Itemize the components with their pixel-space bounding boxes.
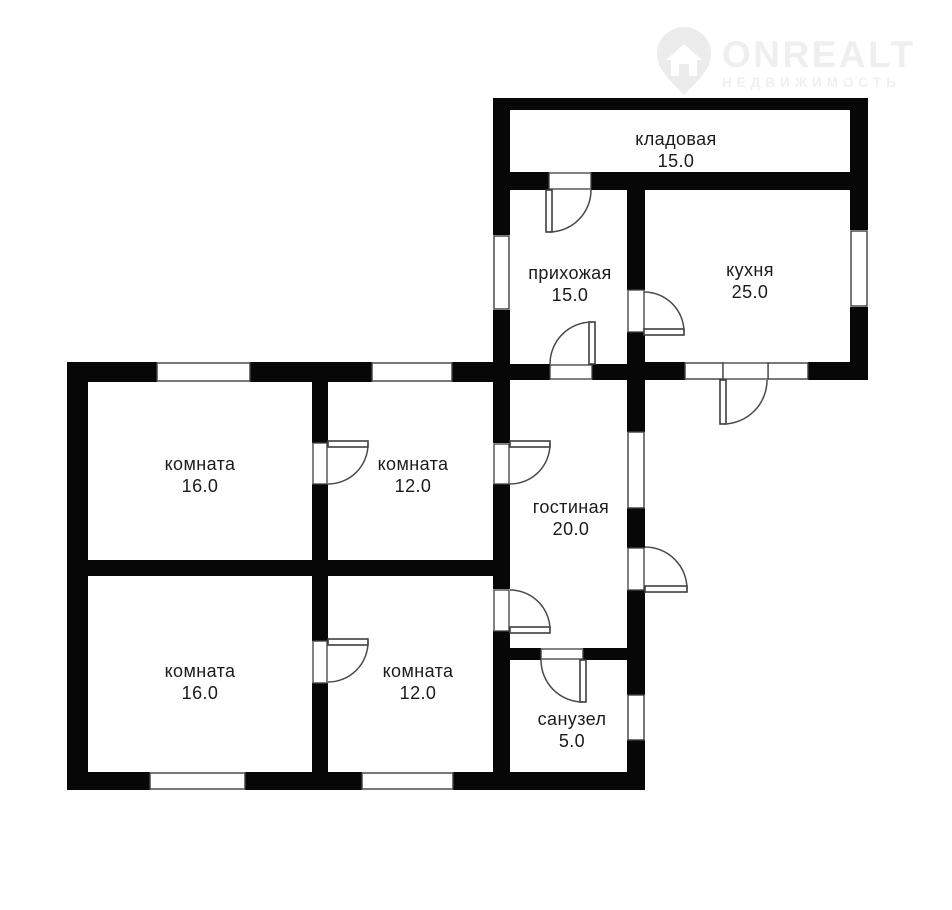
door-threshold-prihozhaya-gostinaya — [550, 365, 592, 379]
room-label-komnata-top-left: комната — [165, 454, 236, 474]
watermark-logo: ONREALT НЕДВИЖИМОСТЬ — [657, 27, 916, 95]
door-threshold-kladovaya — [549, 173, 591, 189]
room-label-komnata-bottom-right: комната — [383, 661, 454, 681]
room-label-sanuzel: санузел — [538, 709, 607, 729]
room-labels: кладовая 15.0 прихожая 15.0 кухня 25.0 к… — [165, 129, 774, 751]
wall-bottom-seg1 — [67, 772, 150, 790]
wall-rooms-horizontal — [88, 560, 493, 576]
window-gostinaya-right — [628, 432, 644, 508]
door-arc-sanuzel — [541, 660, 583, 702]
wall-kladovaya-bottom-seg2 — [591, 172, 868, 190]
wall-rooms-vertical-seg3 — [312, 683, 328, 772]
room-area-komnata-top-left: 16.0 — [182, 476, 219, 496]
wall-gostinaya-top-seg1 — [510, 364, 550, 380]
wall-west-seg1 — [493, 190, 510, 235]
door-threshold-komnata-top — [313, 443, 327, 484]
door-leaf-kladovaya — [546, 190, 552, 232]
window-kuhnya-bottom-2 — [768, 363, 808, 379]
room-area-komnata-bottom-left: 16.0 — [182, 683, 219, 703]
door-leaf-komnata-gostinaya-top — [510, 441, 550, 447]
door-threshold-sanuzel — [541, 649, 583, 659]
room-label-komnata-top-right: комната — [378, 454, 449, 474]
house-door-glyph — [679, 64, 689, 76]
wall-gostinaya-top-seg2 — [592, 364, 627, 380]
room-label-gostinaya: гостиная — [533, 497, 609, 517]
door-threshold-prihozhaya-kuhnya — [628, 290, 644, 332]
wall-sanuzel-top-seg2 — [583, 648, 627, 660]
door-arc-komnata-bottom — [328, 642, 368, 682]
wall-outer-left — [67, 362, 88, 790]
door-leaf-komnata-gostinaya-bottom — [510, 627, 550, 633]
window-komnata-br-bottom — [362, 773, 453, 789]
wall-kladovaya-top — [493, 98, 868, 110]
door-leaf-komnata-bottom — [328, 639, 368, 645]
floorplan-canvas: ONREALT НЕДВИЖИМОСТЬ — [0, 0, 952, 910]
door-leaf-sanuzel — [580, 660, 586, 702]
doors — [313, 173, 768, 702]
door-threshold-komnata-gostinaya-bottom — [494, 590, 509, 631]
door-arc-prihozhaya-gostinaya — [550, 322, 592, 364]
wall-left-top-seg1 — [67, 362, 157, 382]
door-leaf-prihozhaya-kuhnya — [644, 329, 684, 335]
window-komnata-bl-bottom — [150, 773, 245, 789]
wall-divider-seg3 — [627, 508, 645, 548]
wall-divider-seg4 — [627, 590, 645, 695]
door-arc-komnata-gostinaya-top — [510, 444, 550, 484]
room-area-kuhnya: 25.0 — [732, 282, 769, 302]
wall-bottom-seg2 — [245, 772, 362, 790]
room-label-komnata-bottom-left: комната — [165, 661, 236, 681]
wall-divider-seg2 — [627, 332, 645, 432]
door-arc-komnata-top — [328, 444, 368, 484]
logo-tagline-text: НЕДВИЖИМОСТЬ — [722, 75, 901, 90]
window-kuhnya-right — [851, 231, 867, 306]
room-area-gostinaya: 20.0 — [553, 519, 590, 539]
room-area-kladovaya: 15.0 — [658, 151, 695, 171]
door-arc-komnata-gostinaya-bottom — [510, 590, 550, 630]
logo-brand-text: ONREALT — [722, 34, 916, 75]
door-arc-kladovaya — [549, 190, 591, 232]
door-leaf-gostinaya-exterior — [645, 586, 687, 592]
door-arc-gostinaya-exterior — [645, 547, 687, 589]
wall-left-top-seg3 — [452, 362, 510, 382]
door-arc-kuhnya-exterior — [723, 380, 767, 424]
door-arc-prihozhaya-kuhnya — [644, 292, 684, 332]
door-leaf-prihozhaya-gostinaya — [589, 322, 595, 364]
window-kuhnya-bottom-1 — [685, 363, 723, 379]
room-area-sanuzel: 5.0 — [559, 731, 585, 751]
window-sanuzel-right — [628, 695, 644, 740]
wall-kitchen-bottom-seg1 — [645, 362, 685, 380]
door-threshold-gostinaya-exterior — [628, 548, 644, 590]
wall-divider-seg1 — [627, 190, 645, 290]
window-komnata-tr-top — [372, 363, 452, 381]
room-label-kladovaya: кладовая — [635, 129, 716, 149]
room-label-kuhnya: кухня — [726, 260, 774, 280]
room-area-komnata-bottom-right: 12.0 — [400, 683, 437, 703]
window-prihozhaya-left — [494, 236, 509, 309]
door-leaf-komnata-top — [328, 441, 368, 447]
wall-kladovaya-bottom-seg1 — [493, 172, 549, 190]
room-label-prihozhaya: прихожая — [528, 263, 611, 283]
door-threshold-komnata-gostinaya-top — [494, 444, 509, 484]
wall-bottom-seg3 — [453, 772, 645, 790]
wall-west-seg4 — [493, 631, 510, 790]
door-threshold-kuhnya-exterior — [723, 363, 768, 379]
wall-sanuzel-top-seg1 — [510, 648, 541, 660]
wall-kitchen-bottom-seg2 — [808, 362, 868, 380]
door-leaf-kuhnya-exterior — [720, 380, 726, 424]
wall-left-top-seg2 — [250, 362, 372, 382]
window-komnata-tl-top — [157, 363, 250, 381]
room-area-prihozhaya: 15.0 — [552, 285, 589, 305]
wall-kitchen-right-seg1 — [850, 172, 868, 230]
room-area-komnata-top-right: 12.0 — [395, 476, 432, 496]
wall-rooms-vertical-seg1 — [312, 382, 328, 443]
wall-west-seg3 — [493, 484, 510, 589]
door-threshold-komnata-bottom — [313, 641, 327, 683]
